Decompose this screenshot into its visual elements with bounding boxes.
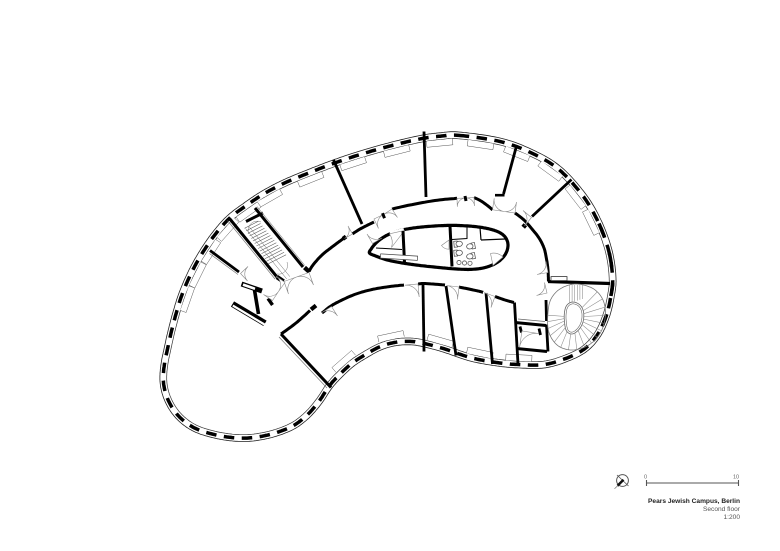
svg-text:Pears Jewish Campus, Berlin: Pears Jewish Campus, Berlin [648, 498, 740, 505]
svg-text:Second floor: Second floor [703, 506, 741, 513]
svg-text:1:200: 1:200 [723, 514, 740, 521]
svg-text:10: 10 [733, 475, 739, 481]
svg-text:0: 0 [644, 475, 647, 481]
